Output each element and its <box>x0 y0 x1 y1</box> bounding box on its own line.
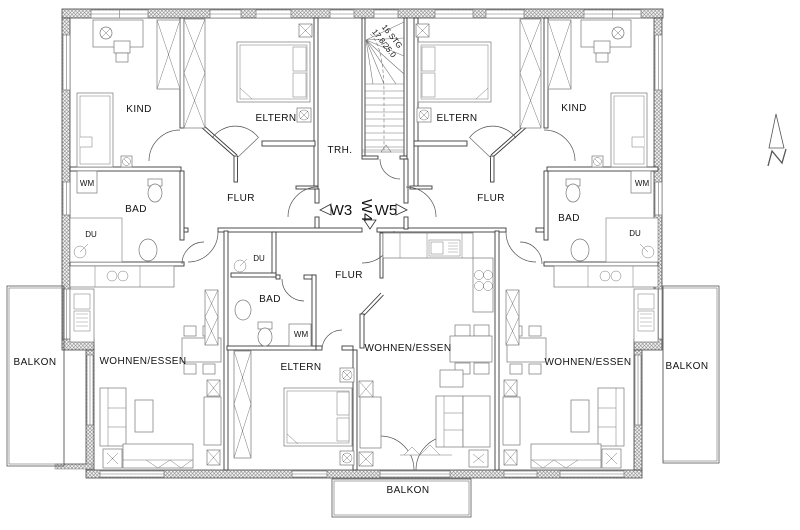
svg-text:DU: DU <box>629 229 641 238</box>
svg-text:WM: WM <box>80 179 95 188</box>
svg-text:BAD: BAD <box>125 204 147 215</box>
svg-text:DU: DU <box>85 230 97 239</box>
svg-text:ELTERN: ELTERN <box>255 113 296 124</box>
svg-text:BALKON: BALKON <box>666 361 709 372</box>
svg-text:BAD: BAD <box>259 294 281 305</box>
svg-text:WOHNEN/ESSEN: WOHNEN/ESSEN <box>364 343 451 354</box>
svg-text:TRH.: TRH. <box>328 145 353 156</box>
svg-text:BAD: BAD <box>558 213 580 224</box>
svg-text:KIND: KIND <box>561 103 587 114</box>
svg-text:BALKON: BALKON <box>387 485 430 496</box>
svg-text:WM: WM <box>635 179 650 188</box>
svg-text:FLUR: FLUR <box>335 270 363 281</box>
svg-text:WOHNEN/ESSEN: WOHNEN/ESSEN <box>544 357 631 368</box>
svg-text:KIND: KIND <box>126 104 152 115</box>
svg-text:W5: W5 <box>375 202 398 219</box>
svg-text:WOHNEN/ESSEN: WOHNEN/ESSEN <box>99 356 186 367</box>
svg-text:W3: W3 <box>330 202 353 219</box>
svg-text:W4: W4 <box>358 199 375 222</box>
svg-text:ELTERN: ELTERN <box>280 362 321 373</box>
svg-text:DU: DU <box>253 254 265 263</box>
svg-text:WM: WM <box>294 330 309 339</box>
svg-text:BALKON: BALKON <box>14 357 57 368</box>
svg-text:FLUR: FLUR <box>477 193 505 204</box>
svg-text:ELTERN: ELTERN <box>436 113 477 124</box>
svg-text:FLUR: FLUR <box>227 193 255 204</box>
